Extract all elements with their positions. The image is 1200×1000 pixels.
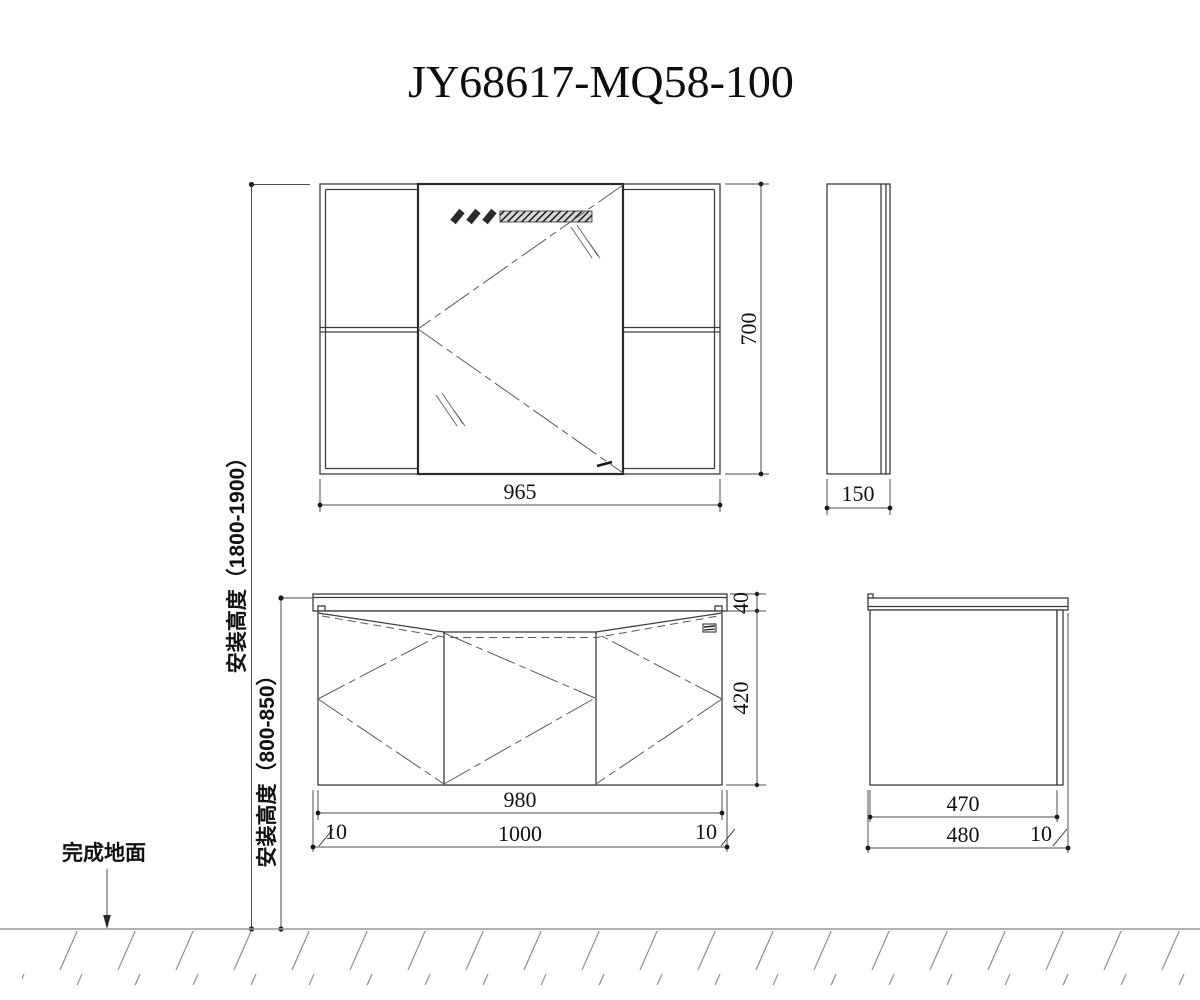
- dimension-body-height: 420: [726, 611, 766, 787]
- drawing-title: JY68617-MQ58-100: [408, 56, 794, 107]
- dimension-mirror-depth: 150: [825, 479, 893, 515]
- countertop: [313, 594, 727, 611]
- led-light-strip: [453, 211, 592, 222]
- dim-label-150: 150: [842, 481, 875, 506]
- mirror-door: [418, 184, 623, 474]
- dimension-mirror-width: 965: [318, 479, 723, 512]
- mirror-cabinet-side-view: [827, 184, 890, 474]
- technical-drawing-page: JY68617-MQ58-100: [0, 0, 1200, 1000]
- dim-label-700: 700: [736, 313, 761, 346]
- dim-label-10-side: 10: [1030, 821, 1052, 846]
- dim-label-470: 470: [947, 791, 980, 816]
- cad-drawing: JY68617-MQ58-100: [0, 0, 1200, 1000]
- vanity-side-view: [868, 594, 1068, 785]
- dim-label-965: 965: [504, 479, 537, 504]
- dim-label-10-left: 10: [325, 819, 347, 844]
- vanity-front-view: [313, 594, 727, 785]
- dim-label-40: 40: [728, 592, 753, 614]
- dim-label-980: 980: [504, 787, 537, 812]
- dimension-counter-height: 40: [726, 592, 766, 614]
- install-height-vanity-label: 安装高度（800-850）: [255, 664, 279, 867]
- dimension-mirror-height: 700: [725, 182, 769, 477]
- install-height-mirror-label: 安装高度（1800-1900）: [225, 447, 249, 673]
- mirror-cabinet-front-view: [320, 184, 720, 474]
- middle-door: [444, 632, 596, 785]
- install-height-vanity: 安装高度（800-850）: [246, 595, 313, 931]
- finished-floor: 完成地面: [0, 841, 1200, 985]
- brand-logo-vanity: [703, 624, 716, 632]
- dim-label-1000: 1000: [498, 821, 542, 846]
- dimension-side-body-depth: 470: [868, 790, 1060, 822]
- floor-hatch: [22, 931, 1192, 985]
- dim-label-480: 480: [947, 822, 980, 847]
- floor-label: 完成地面: [62, 841, 146, 865]
- side-door-panel: [1057, 610, 1063, 785]
- dim-label-420: 420: [728, 682, 753, 715]
- floor-arrow: [103, 915, 111, 929]
- dim-label-10-right: 10: [695, 819, 717, 844]
- dimension-body-width: 980: [316, 787, 725, 820]
